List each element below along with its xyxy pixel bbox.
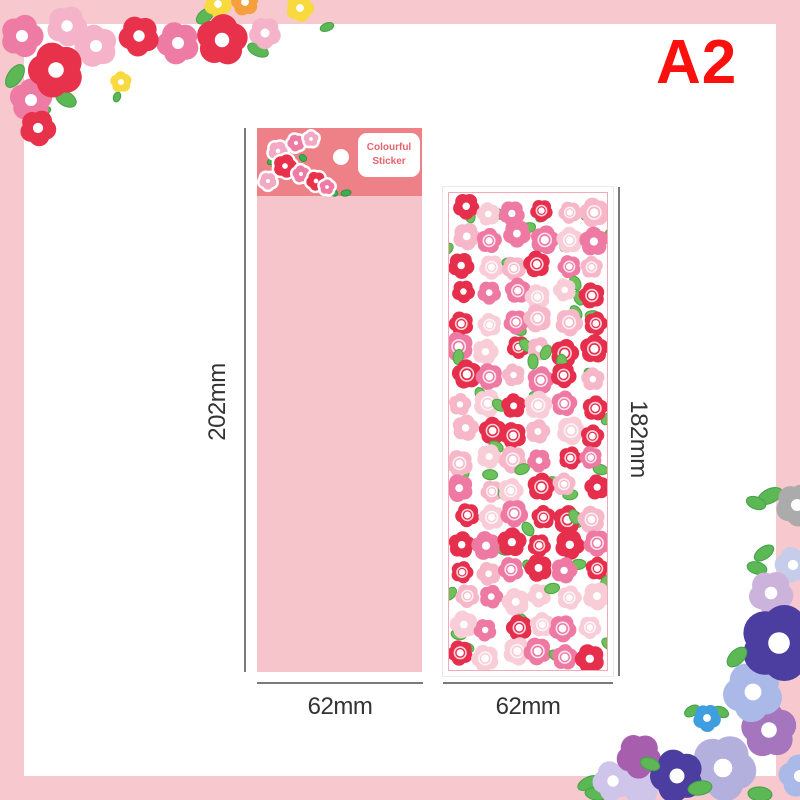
sticker-sheet <box>443 187 613 676</box>
sticker-package: Colourful Sticker <box>257 128 422 672</box>
package-body <box>257 196 422 672</box>
sheet-height-label: 182mm <box>624 389 652 489</box>
hang-hole <box>333 149 349 165</box>
sheet-width-label: 62mm <box>478 693 578 721</box>
package-width-label: 62mm <box>290 693 390 721</box>
package-header: Colourful Sticker <box>257 128 422 196</box>
package-title-line2: Sticker <box>358 155 420 169</box>
dimension-line-package-width <box>257 682 423 684</box>
dimension-line-sheet-width <box>443 682 613 684</box>
flower-garland-top-left <box>2 0 335 146</box>
flower-sticker-pattern <box>449 193 607 670</box>
package-height-label: 202mm <box>204 352 232 452</box>
package-title-label: Colourful Sticker <box>358 133 420 177</box>
dimension-line-package-height <box>244 128 246 672</box>
variant-badge: A2 <box>656 32 737 94</box>
package-title-line1: Colourful <box>358 141 420 155</box>
product-dimension-image: A2 Colourful Sticker 202mm 182mm 62mm 62… <box>0 0 800 800</box>
dimension-line-sheet-height <box>618 187 620 676</box>
